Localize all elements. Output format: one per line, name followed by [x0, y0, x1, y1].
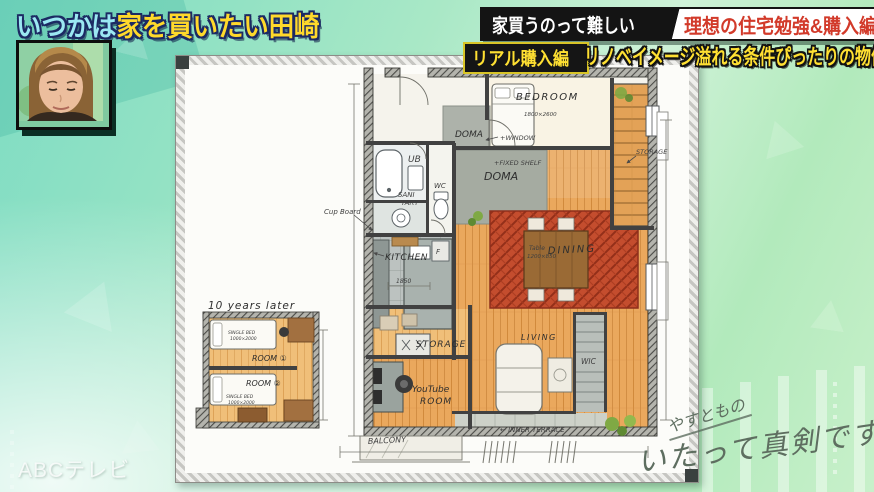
bg-triangle — [64, 272, 129, 332]
topic-banner-right: 理想の住宅勉強&購入編 — [682, 9, 874, 39]
topic-banner: 家買うのって難しい 理想の住宅勉強&購入編 — [480, 7, 874, 41]
show-title-part1: いつかは — [16, 12, 117, 42]
bg-triangle — [756, 115, 805, 160]
guest-photo — [16, 40, 112, 130]
program-logo: やすともの いたって真剣です — [630, 380, 870, 492]
bg-triangle — [810, 298, 848, 332]
guest-face-illustration — [19, 43, 103, 121]
segment-badge: リアル購入編 — [463, 42, 589, 74]
segment-caption: リノベイメージ溢れる条件ぴったりの物件 — [584, 41, 874, 71]
bg-dotted-line — [10, 430, 14, 490]
topic-banner-divider — [670, 9, 682, 39]
bg-triangle — [118, 418, 159, 454]
show-title: いつかは家を買いたい田崎 — [16, 5, 339, 44]
whiteboard-paper — [185, 65, 689, 473]
broadcaster-watermark: ABCテレビ — [18, 454, 130, 484]
topic-banner-left: 家買うのって難しい — [482, 9, 670, 39]
show-title-part2: 家を買いたい田崎 — [117, 12, 320, 42]
whiteboard — [175, 55, 699, 483]
tv-frame: Table 1200×850 F — [0, 0, 874, 492]
whiteboard-corner — [176, 56, 189, 69]
